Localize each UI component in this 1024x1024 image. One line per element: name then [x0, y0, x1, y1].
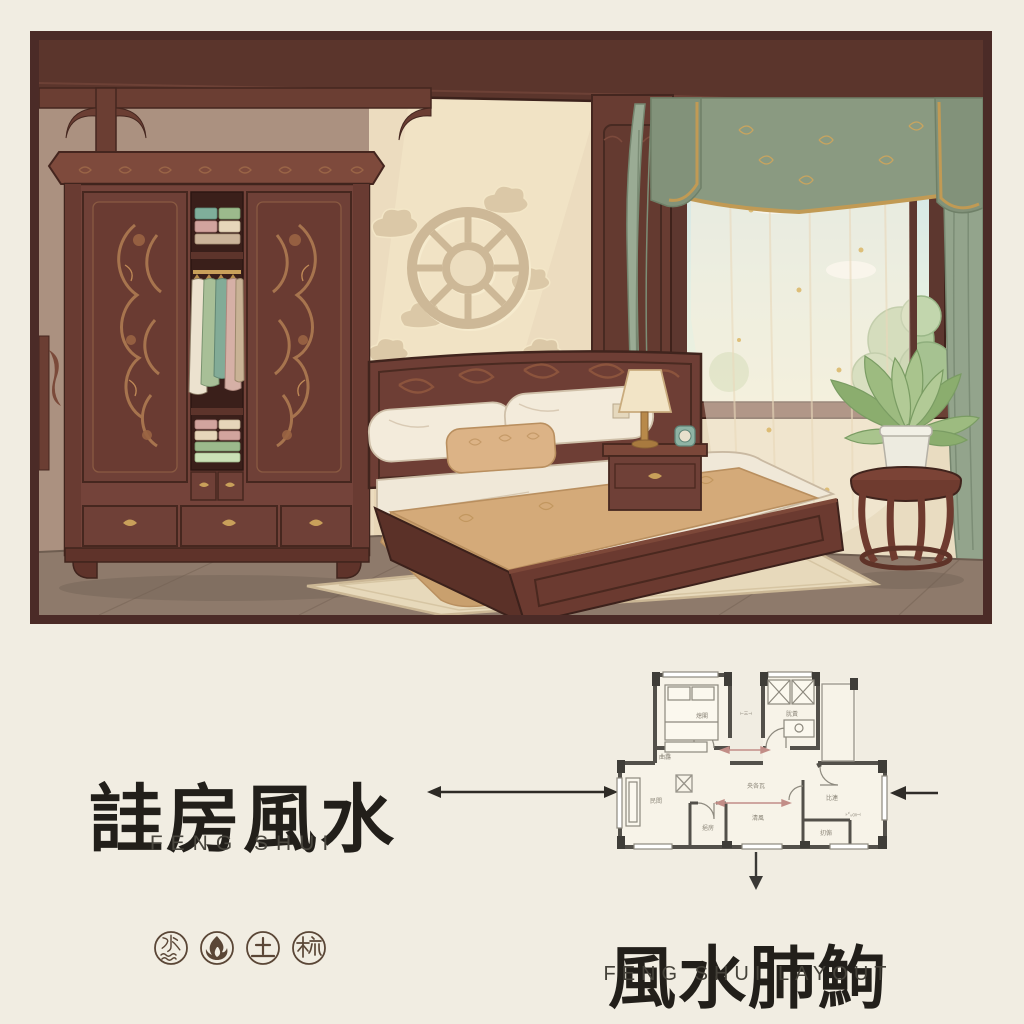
wardrobe-crown [49, 152, 384, 184]
plan-label: 挹房 [702, 824, 714, 832]
wardrobe-drawers [83, 506, 351, 546]
wood-element-icon [293, 932, 325, 964]
water-element-icon [155, 932, 187, 964]
layout-subtitle-english: FENG SHUI LAYOUT [568, 963, 928, 986]
plan-dim-label: ⊢㆔⊣ [740, 711, 752, 717]
double-headed-arrow [425, 780, 620, 804]
accent-cushion [446, 422, 557, 473]
bedroom-illustration [30, 31, 992, 624]
plan-label: 民閻 [650, 798, 662, 805]
wardrobe [49, 152, 384, 578]
wardrobe-base [65, 548, 369, 562]
shelf [191, 252, 243, 259]
bedroom-scene [39, 40, 983, 615]
five-element-icons [148, 924, 332, 972]
bagua-wheel [412, 212, 526, 326]
plan-dim-label: ⊦㌱㎝⊣ [845, 811, 860, 818]
wardrobe-open-section [189, 192, 244, 500]
wardrobe-right-door [247, 192, 351, 482]
main-subtitle-english: FENG SHUI [78, 832, 408, 856]
shelf [191, 408, 243, 415]
plan-label: 曲馫 [659, 753, 671, 761]
alarm-clock [675, 426, 695, 446]
plan-label: 比連 [826, 794, 838, 802]
plan-label: 㧅傓 [820, 829, 832, 837]
plan-label: 央各瓦 [747, 782, 765, 790]
entry-arrow [890, 786, 938, 800]
window-valance [651, 98, 983, 213]
down-arrow [744, 850, 768, 892]
floorplan-diagram: 熄閣 曲馫 肬黃 央各瓦 清風 民閻 比連 ⊦㌱㎝⊣ 挹房 㧅傓 ⊢㆔⊣ [606, 660, 948, 867]
hanging-rod [193, 270, 241, 274]
plan-label: 清風 [752, 814, 764, 822]
plan-label: 肬黃 [786, 710, 798, 718]
fire-element-icon [201, 932, 233, 964]
earth-element-icon [247, 932, 279, 964]
plan-label: 熄閣 [696, 712, 708, 720]
wardrobe-left-door [83, 192, 187, 482]
hanging-clothes [189, 274, 244, 395]
